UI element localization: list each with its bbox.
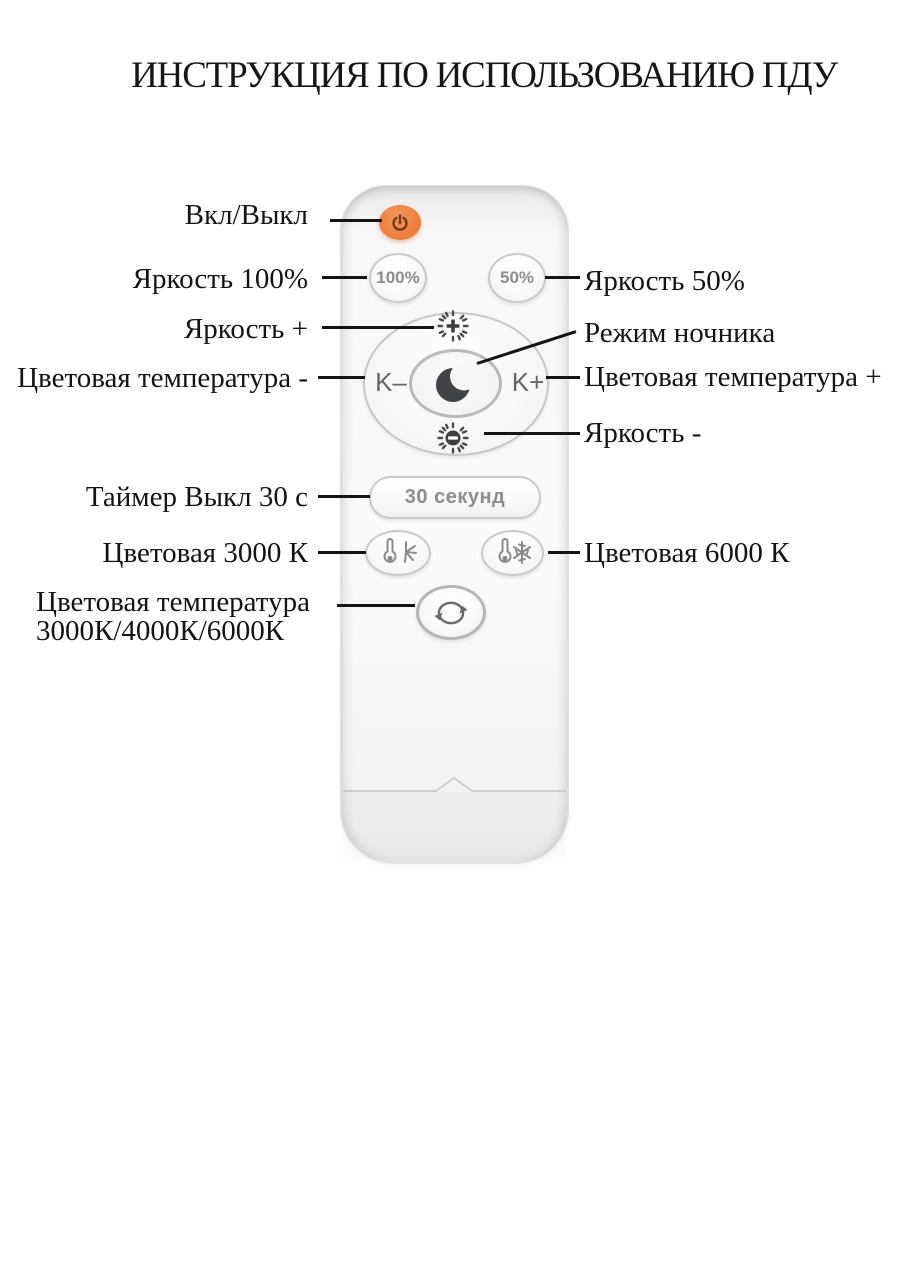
label-color-temp-plus: Цветовая температура +: [584, 360, 882, 394]
color-3000k-button[interactable]: [365, 530, 431, 576]
label-brightness-minus: Яркость -: [584, 416, 701, 450]
leader-line-brightness-minus: [484, 432, 580, 435]
leader-line-power: [330, 219, 382, 222]
label-color-temp-cycle: Цветовая температура 3000К/4000К/6000К: [36, 588, 310, 646]
leader-line-color-temp-minus: [318, 376, 365, 379]
thermometer-warm-icon: [378, 537, 418, 569]
brightness-100-button-label: 100%: [376, 268, 419, 288]
label-night-mode: Режим ночника: [584, 316, 775, 350]
label-brightness-plus: Яркость +: [0, 312, 308, 346]
label-timer-off: Таймер Выкл 30 с: [0, 480, 308, 514]
color-temp-minus-button[interactable]: K–: [369, 369, 413, 395]
label-power: Вкл/Выкл: [0, 198, 308, 232]
moon-icon: [433, 361, 479, 407]
sun-minus-icon: [436, 421, 470, 455]
timer-30s-button-label: 30 секунд: [405, 486, 505, 509]
brightness-up-button[interactable]: [436, 309, 470, 343]
label-color-temp-cycle-line2: 3000К/4000К/6000К: [36, 617, 310, 646]
label-color-temp-cycle-line1: Цветовая температура: [36, 588, 310, 617]
power-button[interactable]: [379, 205, 421, 240]
brightness-100-button[interactable]: 100%: [369, 253, 427, 303]
remote-control-body: 100% 50% K– K+: [340, 185, 569, 864]
leader-line-color-6000: [548, 551, 580, 554]
sun-plus-icon: [436, 309, 470, 343]
leader-line-brightness-plus: [322, 326, 434, 329]
brightness-50-button[interactable]: 50%: [488, 253, 546, 303]
color-temp-plus-button[interactable]: K+: [506, 369, 550, 395]
page-title: ИНСТРУКЦИЯ ПО ИСПОЛЬЗОВАНИЮ ПДУ: [131, 54, 837, 97]
label-brightness-100: Яркость 100%: [0, 262, 308, 296]
leader-line-color-cycle: [337, 604, 415, 607]
timer-30s-button[interactable]: 30 секунд: [369, 476, 541, 519]
leader-line-color-temp-plus: [546, 376, 580, 379]
label-color-3000: Цветовая 3000 К: [0, 536, 308, 570]
color-temp-cycle-button[interactable]: [416, 585, 486, 640]
brightness-down-button[interactable]: [436, 421, 470, 455]
instruction-page: ИНСТРУКЦИЯ ПО ИСПОЛЬЗОВАНИЮ ПДУ 100% 50%: [0, 0, 905, 1280]
label-brightness-50: Яркость 50%: [584, 264, 745, 298]
power-icon: [389, 212, 411, 234]
label-color-temp-minus: Цветовая температура -: [0, 361, 308, 395]
leader-line-timer: [318, 495, 370, 498]
leader-line-brightness-50: [545, 276, 580, 279]
color-6000k-button[interactable]: [481, 530, 544, 576]
label-color-6000: Цветовая 6000 К: [584, 536, 790, 570]
thermometer-cold-icon: [493, 537, 533, 569]
brightness-50-button-label: 50%: [500, 268, 534, 288]
leader-line-brightness-100: [322, 276, 367, 279]
leader-line-color-3000: [318, 551, 366, 554]
cycle-arrows-icon: [429, 595, 473, 631]
